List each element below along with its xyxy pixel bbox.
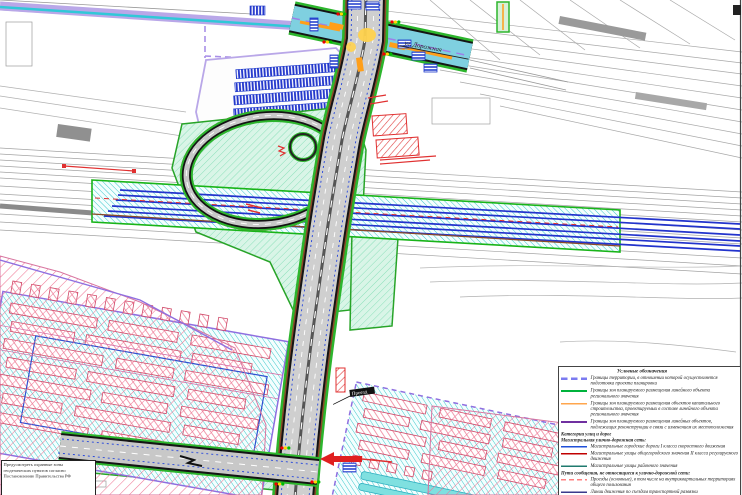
note-line: Постановлению Правительства РФ: [4, 474, 97, 480]
legend-row-class2-street: Магистральные улицы общегородского значе…: [561, 451, 739, 462]
legend-heading-network: Магистральная улично-дорожная сеть:: [561, 438, 739, 443]
legend-item-label: Магистральные городские дороги I класса …: [591, 444, 726, 450]
legend-item-label: Границы зон планируемого размещения лине…: [591, 419, 740, 430]
legend-row-planning-boundary: Границы территории, в отношении которой …: [561, 376, 739, 387]
legend-row-class1-road: Магистральные городские дороги I класса …: [561, 444, 739, 450]
legend-row-district-street: Магистральные улицы районного значения: [561, 464, 739, 470]
legend-row-reconstruction-zone: Границы зон планируемого размещения лине…: [561, 419, 739, 430]
legend-row-driveways: Проезды (основные), в том числе на внутр…: [561, 477, 739, 488]
legend-item-label: Линии движения по съездам транспортной р…: [591, 490, 698, 495]
legend-heading-street-categories: Категории улиц и дорог: [561, 432, 739, 437]
legend-item-label: Границы зон планируемого размещения лине…: [591, 388, 740, 399]
dashed-line-symbol: [561, 378, 587, 381]
orange-line-symbol: [561, 403, 587, 405]
legend-item-label: Границы территории, в отношении которой …: [591, 376, 740, 387]
legend-item-label: Магистральные улицы районного значения: [591, 464, 678, 470]
legend-title: Условные обозначения: [617, 369, 739, 375]
legend-row-linear-object-zone: Границы зон планируемого размещения лине…: [561, 388, 739, 399]
red-dashed-line-symbol: [561, 479, 587, 481]
green-line-symbol: [561, 390, 587, 392]
legend-heading-paths: Пути сообщения, не относящиеся к улично-…: [561, 471, 739, 476]
teal-line-symbol: [561, 466, 587, 468]
legend-item-label: Границы зон планируемого размещения объе…: [591, 401, 740, 418]
darkred-line-symbol: [561, 453, 587, 455]
note-box: Предусмотреть охранные зоны геодезически…: [1, 460, 96, 495]
purple-line-symbol: [561, 421, 587, 423]
legend-row-ramp-lines: Линии движения по съездам транспортной р…: [561, 490, 739, 495]
legend-row-capital-construction-zone: Границы зон планируемого размещения объе…: [561, 401, 739, 418]
legend-item-label: Магистральные улицы общегородского значе…: [591, 451, 740, 462]
legend-box: Условные обозначения Границы территории,…: [558, 366, 741, 495]
navy-line-symbol: [561, 492, 587, 494]
legend-item-label: Проезды (основные), в том числе на внутр…: [591, 477, 740, 488]
plan-drawing-canvas: ул. Дорожная Проезд Предусмотреть охранн…: [0, 0, 742, 495]
blue-line-symbol: [561, 446, 587, 448]
